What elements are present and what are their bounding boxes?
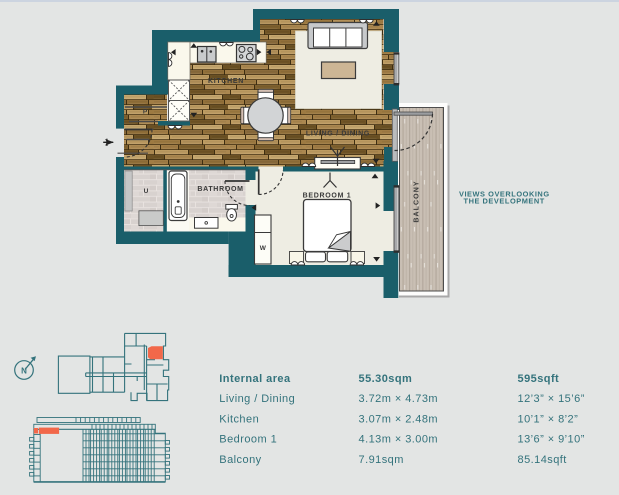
- svg-text:BEDROOM 1: BEDROOM 1: [303, 193, 352, 200]
- svg-text:Internal area: Internal area: [219, 373, 291, 385]
- svg-text:Balcony: Balcony: [219, 454, 261, 466]
- svg-text:7.91sqm: 7.91sqm: [359, 454, 404, 466]
- svg-text:W: W: [260, 245, 267, 252]
- svg-text:595sqft: 595sqft: [518, 373, 560, 385]
- svg-text:85.14sqft: 85.14sqft: [518, 454, 567, 466]
- svg-text:13’6” × 9’10”: 13’6” × 9’10”: [518, 434, 585, 446]
- svg-text:12’3” × 15’6”: 12’3” × 15’6”: [518, 393, 585, 405]
- svg-text:4.13m × 3.00m: 4.13m × 3.00m: [359, 434, 439, 446]
- svg-text:P: P: [143, 109, 148, 116]
- svg-text:LIVING / DINING: LIVING / DINING: [306, 131, 370, 138]
- svg-text:THE DEVELOPMENT: THE DEVELOPMENT: [464, 197, 545, 206]
- svg-text:BALCONY: BALCONY: [413, 180, 420, 222]
- svg-text:U: U: [144, 188, 149, 195]
- svg-text:10’1” × 8’2”: 10’1” × 8’2”: [518, 413, 579, 425]
- svg-text:3.72m × 4.73m: 3.72m × 4.73m: [359, 393, 439, 405]
- svg-text:Living / Dining: Living / Dining: [219, 393, 295, 405]
- svg-text:55.30sqm: 55.30sqm: [359, 373, 413, 385]
- svg-text:KITCHEN: KITCHEN: [208, 78, 244, 85]
- svg-text:Kitchen: Kitchen: [219, 413, 259, 425]
- svg-text:BATHROOM: BATHROOM: [197, 186, 243, 193]
- svg-text:3.07m × 2.48m: 3.07m × 2.48m: [359, 413, 439, 425]
- svg-text:Bedroom 1: Bedroom 1: [219, 434, 277, 446]
